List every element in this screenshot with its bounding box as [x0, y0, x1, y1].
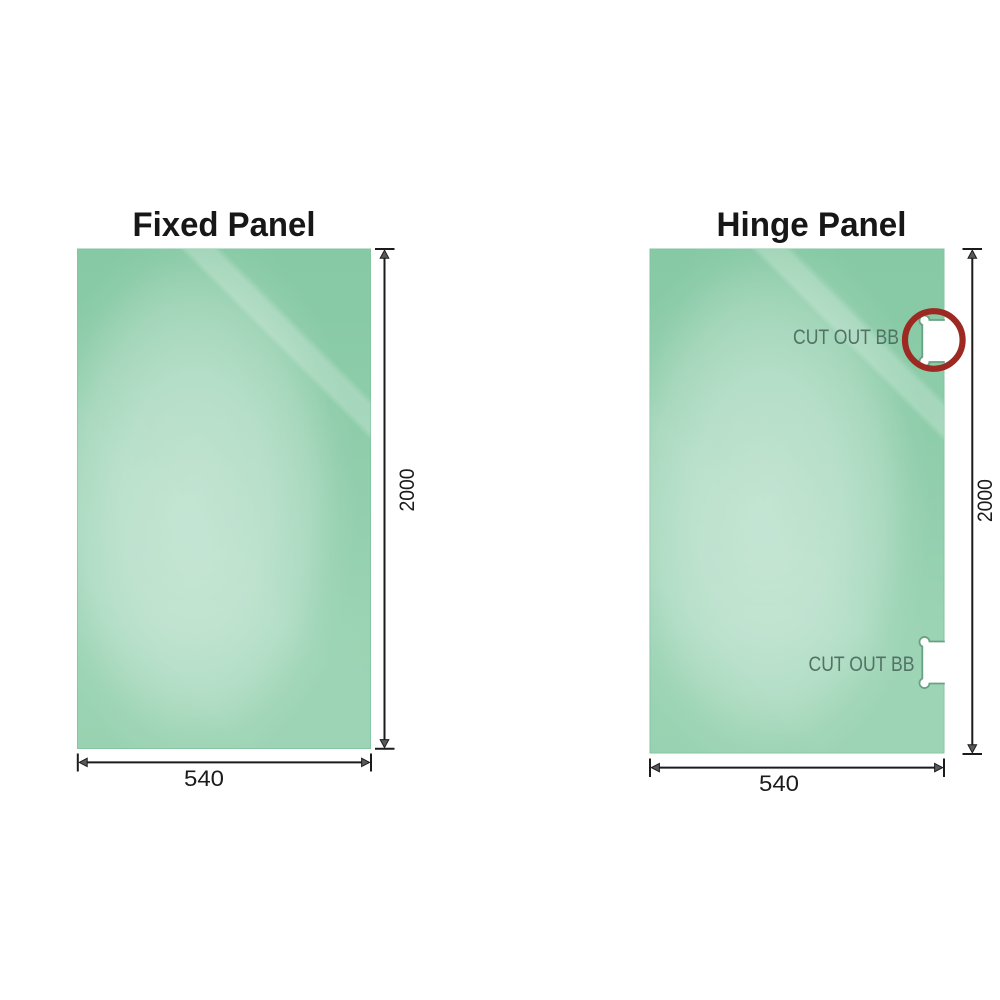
- svg-text:CUT OUT BB: CUT OUT BB: [809, 653, 915, 676]
- svg-text:Fixed Panel: Fixed Panel: [133, 206, 316, 244]
- svg-text:2000: 2000: [974, 479, 997, 522]
- svg-text:2000: 2000: [396, 469, 419, 512]
- svg-text:540: 540: [184, 766, 224, 791]
- svg-text:540: 540: [759, 771, 799, 796]
- svg-text:CUT OUT BB: CUT OUT BB: [793, 326, 899, 349]
- svg-text:Hinge Panel: Hinge Panel: [717, 206, 907, 244]
